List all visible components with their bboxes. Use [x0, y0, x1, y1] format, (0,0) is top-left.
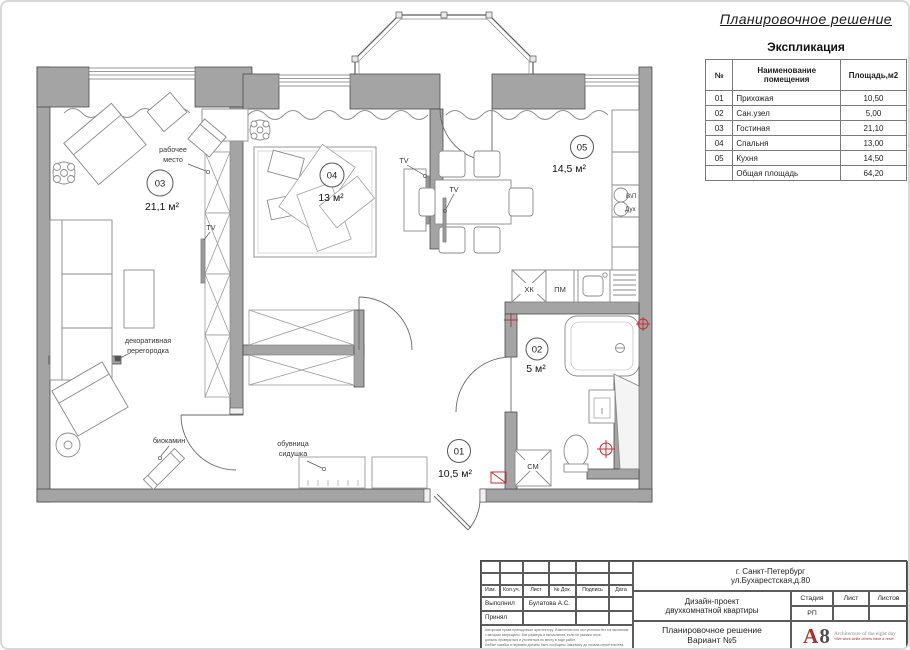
sofa-back	[50, 220, 62, 380]
tb-blank	[481, 561, 500, 573]
tv-living	[201, 239, 205, 283]
vent-label: В\П	[626, 193, 637, 200]
total-num	[706, 166, 733, 181]
plant	[250, 120, 270, 140]
washer-label: СМ	[527, 462, 539, 471]
tb-signature	[576, 611, 609, 625]
tb-blank	[523, 561, 549, 573]
row-name: Прихожая	[733, 91, 841, 106]
chair	[419, 188, 435, 216]
tb-project: Дизайн-проект двухкомнатной квартиры	[633, 591, 791, 621]
col-area: Площадь,м2	[841, 60, 907, 91]
explication-header-row: № Наименование помещения Площадь,м2	[706, 60, 907, 91]
tb-address: г. Санкт-Петербург ул.Бухарестская,д.80	[633, 561, 908, 591]
total-label: Общая площадь	[733, 166, 841, 181]
tb-accepted-label: Принял	[481, 611, 523, 625]
tb-col-koluch: Кол.уч.	[500, 585, 523, 597]
tb-blank	[549, 573, 576, 585]
decor-partition-label: декоративная	[125, 336, 171, 345]
room-02-number: 02	[532, 345, 543, 356]
kitchen-furniture	[419, 110, 639, 302]
room-01-area: 10,5 м²	[438, 468, 473, 480]
tv-label-living: TV	[206, 223, 215, 232]
tb-stage-label: Стадия	[791, 591, 833, 606]
tb-sheets-label: Листов	[869, 591, 908, 606]
logo-digit-8: 8	[819, 626, 830, 647]
bedroom-furniture	[250, 120, 429, 257]
drawing-sheet: 03 21,1 м² 04 13 м² 05 14,5 м² 02 5 м² 0…	[0, 0, 910, 650]
tb-blank	[549, 561, 576, 573]
tb-performed-label: Выполнил	[481, 597, 523, 611]
biofireplace	[143, 448, 184, 489]
tb-blank	[500, 561, 523, 573]
page-title: Планировочное решение	[720, 11, 892, 27]
logo-tagline: «We work while others have a rest»	[834, 637, 894, 641]
biofireplace-label: биокамин	[153, 436, 185, 445]
table-row: 04 Спальня 13,00	[706, 136, 907, 151]
bench	[372, 457, 427, 488]
row-num: 04	[706, 136, 733, 151]
tb-drawing-name: Планировочное решение Вариант №5	[633, 621, 791, 650]
toilet-tank	[564, 464, 588, 472]
table-row: 01 Прихожая 10,50	[706, 91, 907, 106]
sofa-seat	[62, 220, 112, 380]
plant	[53, 162, 75, 184]
row-name: Кухня	[733, 151, 841, 166]
tb-blank	[576, 561, 609, 573]
row-num: 01	[706, 91, 733, 106]
tb-stage-value: РП	[791, 606, 833, 621]
oven-label: Дух	[625, 206, 637, 213]
chair	[509, 188, 533, 216]
chair	[474, 227, 500, 253]
a8-logo: A8 Architecture of the eight day «We wor…	[803, 626, 896, 647]
table-row: 02 Сан.узел 5,00	[706, 106, 907, 121]
shoe-bench-label: обувница	[277, 439, 308, 448]
hallway-furniture	[299, 457, 427, 488]
tb-logo: A8 Architecture of the eight day «We wor…	[791, 621, 908, 650]
tb-col-podpis: Подпись	[576, 585, 609, 597]
total-area: 64,20	[841, 166, 907, 181]
explication: Экспликация № Наименование помещения Пло…	[705, 40, 907, 181]
row-area: 5,00	[841, 106, 907, 121]
fridge-label: ХК	[524, 285, 534, 294]
tb-blank	[576, 573, 609, 585]
row-area: 13,00	[841, 136, 907, 151]
tb-performed-value: Булатова А.С.	[523, 597, 576, 611]
title-block: Изм. Кол.уч. Лист № Док. Подпись Дата Вы…	[480, 560, 907, 650]
tb-sheet-value	[833, 606, 869, 621]
col-num: №	[706, 60, 733, 91]
coffee-table	[124, 270, 154, 328]
tb-signature	[576, 597, 609, 611]
table-row: 03 Гостиная 21,10	[706, 121, 907, 136]
row-num: 05	[706, 151, 733, 166]
explication-title: Экспликация	[705, 40, 907, 54]
room-01-number: 01	[454, 447, 465, 458]
row-name: Гостиная	[733, 121, 841, 136]
table-total-row: Общая площадь 64,20	[706, 166, 907, 181]
chair	[474, 151, 500, 177]
dishwasher-label: ПМ	[554, 285, 566, 294]
row-name: Спальня	[733, 136, 841, 151]
row-num: 03	[706, 121, 733, 136]
table-row: 05 Кухня 14,50	[706, 151, 907, 166]
row-area: 14,50	[841, 151, 907, 166]
tb-date	[609, 611, 633, 625]
tb-date	[609, 597, 633, 611]
row-name: Сан.узел	[733, 106, 841, 121]
tb-col-ndok: № Док.	[549, 585, 576, 597]
workplace-label: рабочее	[159, 145, 187, 154]
explication-table: № Наименование помещения Площадь,м2 01 П…	[705, 59, 907, 181]
col-name: Наименование помещения	[733, 60, 841, 91]
side-table	[147, 92, 187, 131]
tb-sheet-label: Лист	[833, 591, 869, 606]
workplace-label: место	[163, 155, 183, 164]
tv-label-kitchen: TV	[449, 185, 458, 194]
room-03-number: 03	[155, 179, 166, 190]
tb-blank	[523, 573, 549, 585]
shoe-bench-label: сидушка	[279, 449, 307, 458]
room-05-area: 14,5 м²	[552, 163, 587, 175]
balcony-glazing	[352, 12, 536, 74]
tv-kitchen	[443, 198, 446, 242]
chair	[439, 151, 465, 177]
tb-blank	[609, 573, 633, 585]
tb-col-list: Лист	[523, 585, 549, 597]
room-04-number: 04	[327, 171, 338, 182]
room-05-number: 05	[577, 143, 588, 154]
tb-blank	[500, 573, 523, 585]
room-03-area: 21,1 м²	[145, 201, 180, 213]
row-area: 21,10	[841, 121, 907, 136]
row-area: 10,50	[841, 91, 907, 106]
tb-col-data: Дата	[609, 585, 633, 597]
curtains	[64, 109, 608, 120]
room-04-area: 13 м²	[318, 192, 344, 204]
room-02-area: 5 м²	[526, 363, 546, 375]
tb-fine-print: Авторские права принадлежат архитектору.…	[481, 625, 633, 650]
tv-label-bedroom: TV	[399, 156, 408, 165]
decor-partition-label: перегородка	[127, 346, 169, 355]
tb-col-izm: Изм.	[481, 585, 500, 597]
logo-letter-a: A	[803, 626, 818, 647]
toilet	[564, 435, 588, 467]
tb-blank	[609, 561, 633, 573]
tb-blank	[481, 573, 500, 585]
tb-accepted-value	[523, 611, 576, 625]
tb-sheets-value	[869, 606, 908, 621]
row-num: 02	[706, 106, 733, 121]
